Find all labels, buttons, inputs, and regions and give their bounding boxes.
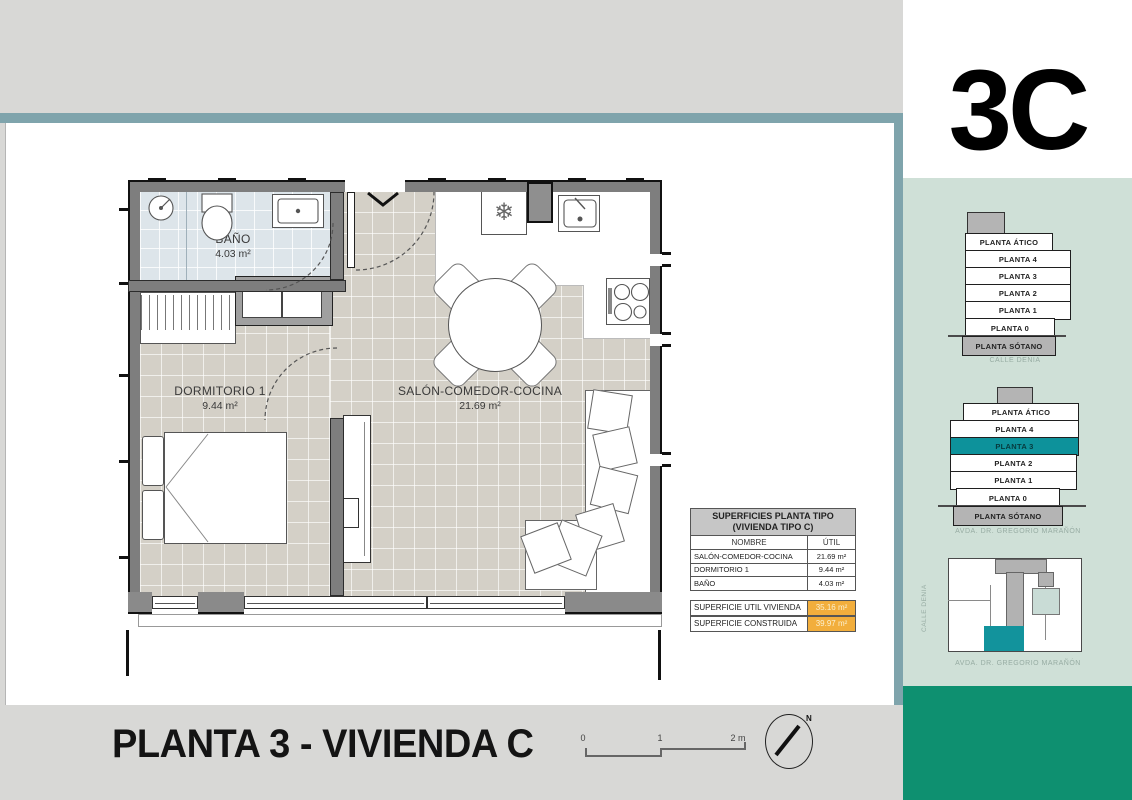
table-row: BAÑO 4.03 m²: [690, 577, 856, 591]
page: { "unit_label": "3C", "icons": { "fridge…: [0, 0, 1132, 800]
scale-bar-tick: [660, 748, 662, 757]
keyplan-partition: [948, 600, 990, 601]
floor-row-sotano: PLANTA SÓTANO: [953, 506, 1063, 526]
scale-bar-tick: [585, 748, 587, 757]
cell-value-highlight: 35.16 m²: [808, 601, 855, 615]
cell-name: SALÓN-COMEDOR-COCINA: [691, 550, 808, 563]
building-roof-block: [967, 212, 1005, 235]
dimension-tick: [119, 208, 128, 211]
dimension-tick: [119, 460, 128, 463]
table-row: DORMITORIO 1 9.44 m²: [690, 564, 856, 578]
cell-util: 4.03 m²: [808, 579, 855, 588]
street-caption: AVDA. DR. GREGORIO MARAÑÓN: [928, 660, 1108, 667]
dimension-tick: [662, 344, 671, 347]
table-title-line2: (VIVIENDA TIPO C): [691, 522, 855, 533]
total-row-construida: SUPERFICIE CONSTRUIDA 39.97 m²: [690, 616, 856, 632]
cell-value-highlight: 39.97 m²: [808, 617, 855, 631]
table-title-line1: SUPERFICIES PLANTA TIPO: [691, 511, 855, 522]
table-row: SALÓN-COMEDOR-COCINA 21.69 m²: [690, 550, 856, 564]
scale-tick-0: 0: [576, 733, 590, 743]
table-title: SUPERFICIES PLANTA TIPO (VIVIENDA TIPO C…: [690, 508, 856, 536]
scale-bar-tick: [744, 742, 746, 750]
dimension-tick: [662, 264, 671, 267]
north-label: N: [806, 714, 812, 723]
plan-linework: [128, 178, 662, 660]
floor-row-sotano: PLANTA SÓTANO: [962, 336, 1056, 356]
cell-util: 9.44 m²: [808, 565, 855, 574]
dimension-tick: [119, 556, 128, 559]
cell-name: DORMITORIO 1: [691, 564, 808, 577]
scale-bar-segment: [660, 748, 746, 750]
scale-bar-segment: [585, 755, 661, 757]
entrance-threshold: [368, 193, 398, 205]
keyplan-patio: [1032, 588, 1060, 615]
dimension-tick: [662, 452, 671, 455]
cell-name: SUPERFICIE UTIL VIVIENDA: [691, 601, 808, 615]
table-header-row: NOMBRE ÚTIL: [690, 536, 856, 550]
keyplan-current-unit: [984, 626, 1024, 651]
table-spacer: [690, 591, 856, 600]
surfaces-table: SUPERFICIES PLANTA TIPO (VIVIENDA TIPO C…: [690, 508, 856, 632]
street-caption: AVDA. DR. GREGORIO MARAÑÓN: [928, 528, 1108, 535]
dimension-tick: [662, 252, 671, 255]
floor-plan: ❄ BAÑO 4: [128, 178, 662, 660]
scale-tick-1: 1: [653, 733, 667, 743]
cell-name: SUPERFICIE CONSTRUIDA: [691, 617, 808, 631]
street-caption: CALLE DENIA: [940, 357, 1090, 364]
dimension-tick: [662, 464, 671, 467]
keyplan-corridor: [1006, 572, 1024, 629]
dimension-tick: [119, 282, 128, 285]
col-header-util: ÚTIL: [808, 538, 855, 547]
dimension-tick: [662, 332, 671, 335]
keyplan-core: [1038, 572, 1054, 587]
unit-code: 3C: [903, 42, 1132, 178]
cell-name: BAÑO: [691, 577, 808, 590]
scale-tick-2m: 2 m: [726, 733, 750, 743]
teal-right-bar: [893, 113, 903, 705]
sheet-title: PLANTA 3 - VIVIENDA C: [112, 722, 533, 767]
brand-green-block: [903, 686, 1132, 800]
teal-top-bar: [0, 113, 903, 123]
col-header-nombre: NOMBRE: [691, 536, 808, 549]
total-row-util: SUPERFICIE UTIL VIVIENDA 35.16 m²: [690, 600, 856, 616]
cell-util: 21.69 m²: [808, 552, 855, 561]
street-caption-vertical: CALLE DENIA: [921, 568, 933, 648]
dimension-tick: [119, 374, 128, 377]
